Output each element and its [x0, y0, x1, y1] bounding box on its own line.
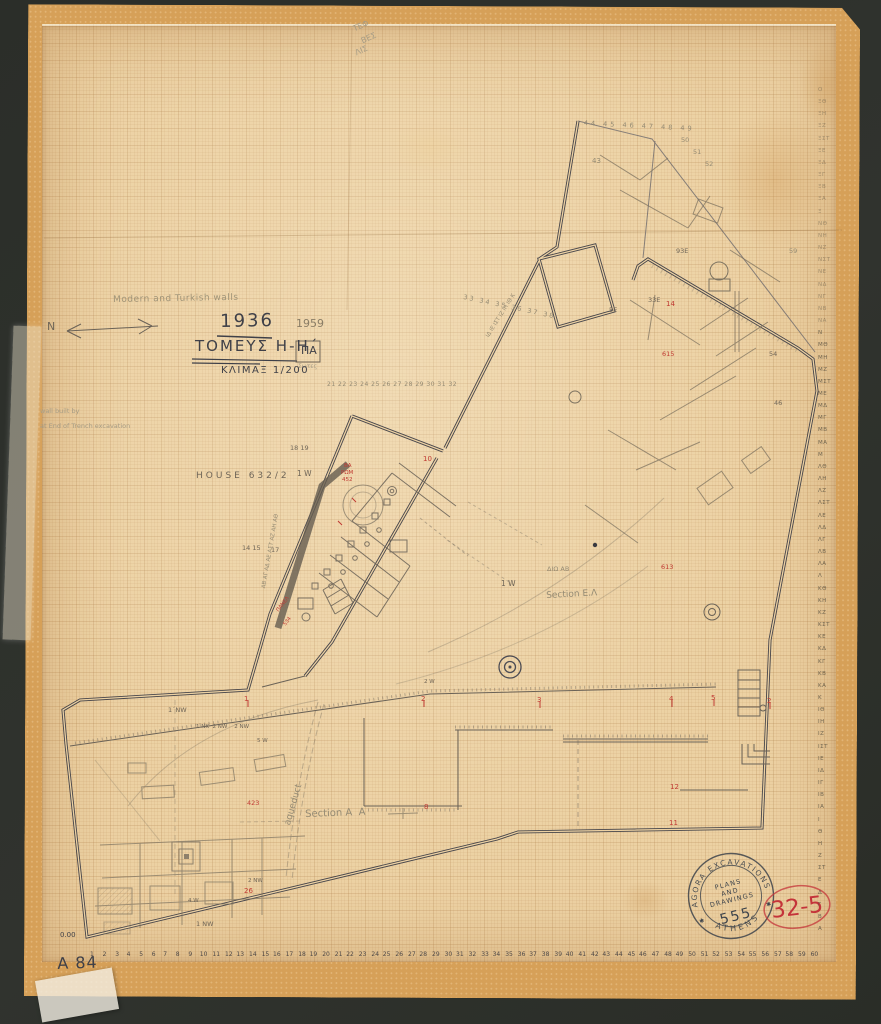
tracing-paper-sheet	[42, 24, 836, 962]
scanned-plan-page: AGORA EXCAVATIONS ATHENS ✱ ✱ PLANS AND D…	[0, 0, 881, 1024]
